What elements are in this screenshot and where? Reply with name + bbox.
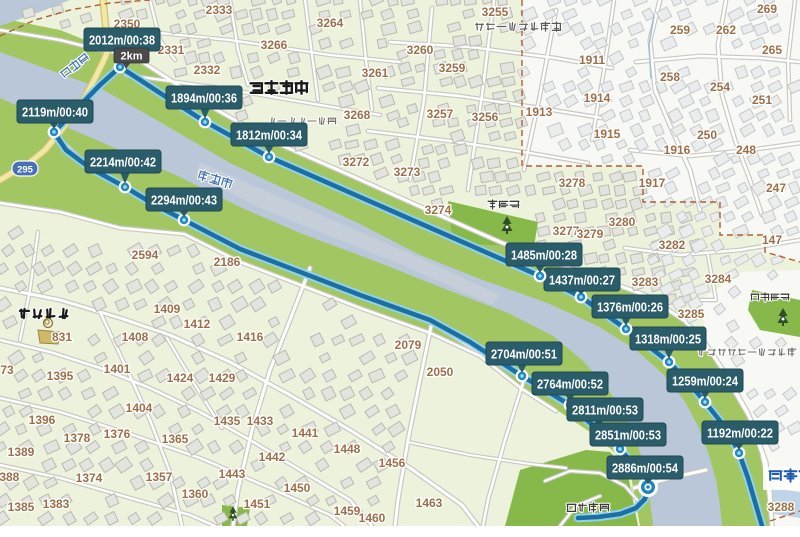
- svg-text:1259m/00:24: 1259m/00:24: [672, 374, 739, 389]
- svg-text:269: 269: [757, 2, 777, 16]
- svg-text:1429: 1429: [209, 371, 236, 385]
- svg-text:2333: 2333: [206, 3, 233, 17]
- svg-text:2079: 2079: [395, 338, 422, 352]
- svg-text:259: 259: [670, 23, 690, 37]
- svg-text:1378: 1378: [64, 431, 91, 445]
- svg-text:1389: 1389: [8, 445, 35, 459]
- svg-text:1360: 1360: [182, 487, 209, 501]
- svg-text:1460: 1460: [359, 511, 386, 525]
- svg-text:3272: 3272: [343, 155, 370, 169]
- svg-text:2886m/00:54: 2886m/00:54: [612, 461, 679, 476]
- svg-text:1915: 1915: [594, 127, 621, 141]
- svg-text:3285: 3285: [678, 307, 705, 321]
- svg-text:1917: 1917: [639, 176, 666, 190]
- svg-text:295: 295: [17, 165, 34, 176]
- svg-text:2704m/00:51: 2704m/00:51: [491, 347, 557, 362]
- svg-text:1433: 1433: [247, 414, 274, 428]
- svg-text:1456: 1456: [379, 456, 406, 470]
- svg-text:1911: 1911: [579, 53, 605, 67]
- svg-text:2050: 2050: [427, 365, 454, 379]
- svg-text:2331: 2331: [158, 43, 185, 57]
- svg-text:1437m/00:27: 1437m/00:27: [549, 273, 615, 288]
- svg-text:1318m/00:25: 1318m/00:25: [635, 332, 701, 347]
- svg-text:3260: 3260: [407, 43, 434, 57]
- svg-text:258: 258: [660, 70, 680, 84]
- svg-text:3274: 3274: [425, 203, 452, 217]
- svg-text:2851m/00:53: 2851m/00:53: [595, 428, 661, 443]
- svg-text:1376m/00:26: 1376m/00:26: [597, 300, 663, 315]
- svg-text:1916: 1916: [664, 143, 691, 157]
- svg-text:1424: 1424: [167, 371, 194, 385]
- svg-text:3259: 3259: [439, 61, 466, 75]
- svg-text:1401: 1401: [104, 362, 131, 376]
- svg-text:1357: 1357: [146, 470, 173, 484]
- svg-text:1450: 1450: [284, 481, 311, 495]
- svg-text:254: 254: [710, 80, 730, 94]
- svg-text:2012m/00:38: 2012m/00:38: [89, 33, 155, 48]
- svg-text:3288: 3288: [768, 500, 795, 514]
- svg-text:3273: 3273: [394, 165, 421, 179]
- svg-text:251: 251: [752, 93, 772, 107]
- svg-text:1385: 1385: [8, 500, 35, 514]
- svg-text:1416: 1416: [237, 330, 264, 344]
- svg-text:2119m/00:40: 2119m/00:40: [22, 105, 88, 120]
- svg-text:1443: 1443: [219, 467, 246, 481]
- svg-text:1408: 1408: [122, 330, 149, 344]
- svg-text:250: 250: [697, 128, 717, 142]
- svg-text:1365: 1365: [162, 432, 189, 446]
- svg-text:1409: 1409: [154, 302, 181, 316]
- svg-text:3256: 3256: [472, 110, 499, 124]
- svg-text:3264: 3264: [317, 16, 344, 30]
- svg-text:1374: 1374: [76, 471, 103, 485]
- svg-text:3282: 3282: [659, 238, 686, 252]
- svg-text:1383: 1383: [43, 497, 70, 511]
- svg-text:3255: 3255: [482, 5, 509, 19]
- svg-text:3277: 3277: [553, 224, 580, 238]
- svg-text:2764m/00:52: 2764m/00:52: [537, 377, 603, 392]
- svg-text:1412: 1412: [184, 317, 211, 331]
- svg-text:3268: 3268: [344, 108, 371, 122]
- svg-text:3279: 3279: [577, 227, 604, 241]
- svg-text:1435: 1435: [214, 414, 241, 428]
- svg-text:3284: 3284: [705, 272, 732, 286]
- svg-text:1396: 1396: [29, 413, 56, 427]
- svg-text:1395: 1395: [47, 369, 74, 383]
- svg-text:147: 147: [762, 233, 782, 247]
- svg-text:3280: 3280: [609, 215, 636, 229]
- svg-text:1485m/00:28: 1485m/00:28: [511, 248, 577, 263]
- svg-text:1442: 1442: [259, 450, 286, 464]
- svg-text:1812m/00:34: 1812m/00:34: [236, 128, 303, 143]
- svg-text:73: 73: [0, 363, 14, 377]
- svg-text:2294m/00:43: 2294m/00:43: [151, 193, 217, 208]
- svg-text:1459: 1459: [334, 504, 361, 518]
- svg-text:247: 247: [766, 181, 786, 195]
- svg-text:2km: 2km: [120, 51, 142, 63]
- svg-text:1388: 1388: [0, 470, 20, 484]
- svg-text:831: 831: [52, 330, 72, 344]
- svg-text:2594: 2594: [132, 248, 159, 262]
- svg-text:2214m/00:42: 2214m/00:42: [90, 155, 156, 170]
- svg-text:2332: 2332: [194, 63, 221, 77]
- svg-text:1463: 1463: [416, 496, 443, 510]
- svg-text:262: 262: [716, 23, 736, 37]
- svg-text:1913: 1913: [526, 105, 553, 119]
- svg-text:1404: 1404: [126, 401, 153, 415]
- svg-text:3266: 3266: [261, 38, 288, 52]
- svg-text:3261: 3261: [362, 66, 389, 80]
- svg-text:1192m/00:22: 1192m/00:22: [707, 426, 773, 441]
- svg-text:3278: 3278: [559, 176, 586, 190]
- svg-text:1894m/00:36: 1894m/00:36: [171, 91, 237, 106]
- svg-text:2186: 2186: [214, 255, 241, 269]
- svg-text:248: 248: [736, 143, 756, 157]
- svg-text:3257: 3257: [427, 107, 454, 121]
- svg-text:2811m/00:53: 2811m/00:53: [572, 403, 638, 418]
- svg-text:1441: 1441: [292, 426, 319, 440]
- svg-text:265: 265: [762, 43, 782, 57]
- svg-text:1914: 1914: [584, 91, 611, 105]
- svg-text:3283: 3283: [632, 275, 659, 289]
- svg-text:1376: 1376: [104, 427, 131, 441]
- svg-text:1448: 1448: [334, 442, 361, 456]
- svg-text:1451: 1451: [244, 497, 271, 511]
